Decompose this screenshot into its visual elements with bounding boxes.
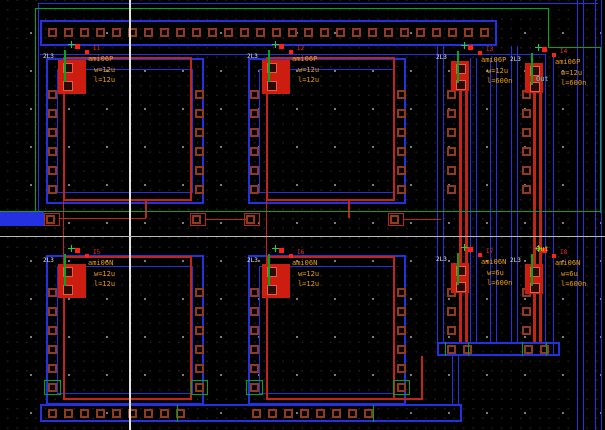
contact-square [397, 364, 406, 373]
contact-square [48, 326, 57, 335]
contact-square [447, 345, 456, 354]
device-instance[interactable]: 2L3 I1 ami06P w=12u l=12u [58, 44, 128, 96]
cell-name-label: ami06P [555, 59, 580, 66]
cell-name-label: ami06N [481, 259, 506, 266]
micro-label: 2L3 [247, 258, 258, 264]
poly-contact-marker [279, 44, 284, 49]
gate-region [525, 264, 543, 294]
contact-square [112, 409, 121, 418]
gate-region [451, 263, 469, 293]
poly-contact-marker [552, 53, 556, 57]
contact-square [195, 166, 204, 175]
width-param-label: w=12u [298, 67, 319, 74]
width-param-label: w=12u [298, 271, 319, 278]
contact-square [416, 28, 425, 37]
micro-label: 2L3 [510, 57, 521, 63]
contact-square [48, 147, 57, 156]
micro-label: 2L3 [43, 54, 54, 60]
diffusion-edge [531, 254, 533, 286]
poly-contact-marker [279, 248, 284, 253]
contact-square [447, 147, 456, 156]
layout-shape [373, 405, 374, 422]
contact-square [480, 28, 489, 37]
layout-shape [38, 3, 598, 4]
contact-square [63, 81, 73, 91]
layout-shape [522, 342, 523, 356]
contact-square [524, 345, 533, 354]
contact-square [364, 409, 373, 418]
layout-shape [60, 218, 146, 219]
contact-square [447, 307, 456, 316]
contact-square [112, 28, 121, 37]
device-instance[interactable]: 2L3 I2 ami06P w=12u l=12u [262, 44, 332, 96]
contact-square [48, 307, 57, 316]
contact-square [384, 28, 393, 37]
pin-label-out-bottom[interactable]: Out [536, 246, 549, 253]
layout-shape [443, 46, 444, 342]
layout-shape [445, 342, 446, 356]
contact-square [48, 288, 57, 297]
pin-label-out-top[interactable]: Out [536, 76, 549, 83]
contact-square [336, 28, 345, 37]
contact-square [332, 409, 341, 418]
device-instance[interactable]: 2L3 I5 ami06N w=12u l=12u [58, 248, 128, 300]
contact-square [246, 215, 255, 224]
contact-square [195, 326, 204, 335]
contact-square [432, 28, 441, 37]
gate-region [262, 264, 290, 298]
diffusion-edge [268, 50, 270, 82]
contact-square [390, 215, 399, 224]
y-axis-line [129, 0, 131, 430]
contact-square [48, 128, 57, 137]
contact-square [397, 109, 406, 118]
width-param-label: w=12u [94, 271, 115, 278]
contact-square [540, 345, 549, 354]
cell-name-label: ami06N [555, 260, 580, 267]
contact-square [397, 90, 406, 99]
contact-square [160, 409, 169, 418]
layout-shape [459, 75, 462, 342]
contact-square [267, 81, 277, 91]
cell-name-label: ami06P [481, 57, 506, 64]
contact-square [64, 28, 73, 37]
length-param-label: l=600n [487, 78, 512, 85]
instance-label: I6 [297, 250, 304, 256]
layout-shape [348, 201, 350, 218]
poly-contact-marker [289, 50, 293, 54]
micro-label: 2L3 [247, 54, 258, 60]
contact-square [195, 109, 204, 118]
contact-square [397, 345, 406, 354]
layout-shape [465, 75, 468, 342]
contact-square [447, 128, 456, 137]
contact-square [348, 409, 357, 418]
device-instance[interactable]: 2L3 I3 ami06P w=12u l=600n [451, 45, 521, 97]
contact-square [267, 285, 277, 295]
length-param-label: l=12u [298, 281, 319, 288]
device-instance[interactable]: 2L3 I4 ami06P w=12u l=600n [525, 47, 595, 99]
poly-contact-marker [468, 45, 473, 50]
contact-square [63, 285, 73, 295]
layout-shape [437, 46, 438, 342]
layout-shape [595, 0, 596, 430]
contact-square [192, 28, 201, 37]
origin-cross-icon [68, 245, 75, 252]
layout-shape [468, 342, 469, 356]
contact-square [250, 128, 259, 137]
contact-square [80, 409, 89, 418]
layout-shape [553, 54, 554, 356]
contact-square [195, 345, 204, 354]
diffusion-edge [457, 51, 459, 83]
instance-label: I3 [486, 47, 493, 53]
contact-square [250, 90, 259, 99]
contact-square [268, 409, 277, 418]
contact-square [397, 288, 406, 297]
diffusion-edge [64, 50, 66, 82]
contact-square [250, 288, 259, 297]
poly-contact-marker [542, 47, 547, 52]
contact-square [522, 185, 531, 194]
instance-label: I7 [486, 249, 493, 255]
contact-square [464, 28, 473, 37]
contact-square [195, 128, 204, 137]
origin-cross-icon [272, 245, 279, 252]
length-param-label: l=600n [561, 80, 586, 87]
contact-square [250, 166, 259, 175]
gate-region [451, 61, 469, 91]
layout-canvas[interactable]: 2L3 I1 ami06P w=12u l=12u 2L3 I2 ami06P … [0, 0, 605, 430]
width-param-label: w=12u [561, 70, 582, 77]
layout-shape [546, 342, 547, 356]
poly-contact-marker [478, 51, 482, 55]
contact-square [522, 128, 531, 137]
gate-region [262, 60, 290, 94]
contact-square [250, 109, 259, 118]
micro-label: 2L3 [510, 258, 521, 264]
contact-square [195, 288, 204, 297]
contact-square [195, 185, 204, 194]
diffusion-edge [531, 53, 533, 85]
layout-shape [421, 356, 423, 400]
contact-square [208, 28, 217, 37]
contact-square [304, 28, 313, 37]
contact-square [447, 166, 456, 175]
layout-shape [404, 219, 441, 220]
layout-shape [393, 380, 410, 395]
contact-square [48, 364, 57, 373]
layout-shape [490, 58, 491, 342]
contact-square [397, 307, 406, 316]
width-param-label: w=6u [561, 271, 578, 278]
contact-square [48, 185, 57, 194]
layout-shape [533, 75, 536, 342]
layout-shape [191, 380, 208, 395]
length-param-label: l=12u [94, 77, 115, 84]
layout-shape [470, 58, 471, 342]
cell-name-label: ami06P [292, 56, 317, 63]
contact-square [397, 166, 406, 175]
layout-shape [35, 8, 549, 9]
layout-shape [206, 219, 246, 220]
micro-label: 2L3 [436, 55, 447, 61]
origin-cross-icon [461, 244, 468, 251]
width-param-label: w=6u [487, 270, 504, 277]
contact-square [144, 409, 153, 418]
contact-square [397, 128, 406, 137]
length-param-label: l=600n [487, 280, 512, 287]
contact-square [284, 409, 293, 418]
contact-square [300, 409, 309, 418]
device-instance[interactable]: 2L3 I7 ami06N w=6u l=600n [451, 247, 521, 299]
origin-cross-icon [535, 44, 542, 51]
instance-label: I2 [297, 46, 304, 52]
length-param-label: l=12u [298, 77, 319, 84]
contact-square [447, 109, 456, 118]
diffusion-edge [64, 254, 66, 286]
poly-contact-marker [75, 44, 80, 49]
origin-cross-icon [272, 41, 279, 48]
contact-square [352, 28, 361, 37]
contact-square [316, 409, 325, 418]
poly-contact-marker [75, 248, 80, 253]
poly-contact-marker [468, 247, 473, 252]
device-instance[interactable]: 2L3 I6 ami06N w=12u l=12u [262, 248, 332, 300]
contact-square [447, 185, 456, 194]
contact-square [224, 28, 233, 37]
layout-shape [177, 405, 178, 422]
cell-name-label: ami06N [292, 260, 317, 267]
contact-square [448, 28, 457, 37]
contact-square [400, 28, 409, 37]
contact-square [48, 345, 57, 354]
micro-label: 2L3 [436, 257, 447, 263]
contact-square [195, 364, 204, 373]
poly-contact-marker [289, 254, 293, 258]
length-param-label: l=12u [94, 281, 115, 288]
layout-shape [0, 212, 44, 226]
layout-shape [539, 75, 542, 342]
poly-contact-marker [85, 254, 89, 258]
layout-shape [40, 20, 497, 46]
contact-square [48, 409, 57, 418]
micro-label: 2L3 [43, 258, 54, 264]
diffusion-edge [457, 253, 459, 285]
contact-square [195, 90, 204, 99]
origin-cross-icon [68, 41, 75, 48]
contact-square [522, 307, 531, 316]
gate-region [58, 60, 86, 94]
contact-square [96, 409, 105, 418]
contact-square [522, 166, 531, 175]
contact-square [252, 409, 261, 418]
layout-shape [44, 380, 61, 395]
contact-square [160, 28, 169, 37]
cell-name-label: ami06P [88, 56, 113, 63]
layout-shape [246, 380, 263, 395]
width-param-label: w=12u [487, 68, 508, 75]
contact-square [250, 185, 259, 194]
poly-contact-marker [85, 50, 89, 54]
layout-shape [145, 201, 147, 218]
instance-label: I8 [560, 250, 567, 256]
contact-square [522, 147, 531, 156]
layout-shape [601, 0, 602, 430]
contact-square [397, 326, 406, 335]
origin-cross-icon [461, 42, 468, 49]
contact-square [522, 109, 531, 118]
contact-square [46, 215, 55, 224]
contact-square [195, 307, 204, 316]
contact-square [195, 147, 204, 156]
contact-square [368, 28, 377, 37]
layout-shape [545, 54, 546, 356]
instance-label: I5 [93, 250, 100, 256]
device-instance[interactable]: 2L3 I8 ami06N w=6u l=600n [525, 248, 595, 300]
layout-shape [38, 3, 39, 212]
contact-square [256, 28, 265, 37]
contact-square [176, 28, 185, 37]
poly-contact-marker [478, 253, 482, 257]
contact-square [240, 28, 249, 37]
layout-shape [395, 398, 423, 400]
layout-shape [458, 356, 459, 404]
layout-shape [452, 356, 453, 404]
x-axis-line [0, 236, 605, 237]
layout-shape [35, 8, 36, 212]
contact-square [64, 409, 73, 418]
instance-label: I1 [93, 46, 100, 52]
diffusion-edge [268, 254, 270, 286]
contact-square [447, 326, 456, 335]
layout-shape [476, 58, 477, 342]
contact-square [397, 185, 406, 194]
contact-square [48, 166, 57, 175]
contact-square [250, 345, 259, 354]
contact-square [272, 28, 281, 37]
width-param-label: w=12u [94, 67, 115, 74]
layout-shape [0, 211, 601, 212]
contact-square [250, 364, 259, 373]
instance-label: I4 [560, 49, 567, 55]
contact-square [397, 147, 406, 156]
poly-contact-marker [552, 254, 556, 258]
contact-square [320, 28, 329, 37]
contact-square [250, 147, 259, 156]
contact-square [48, 109, 57, 118]
contact-square [192, 215, 201, 224]
contact-square [96, 28, 105, 37]
contact-square [288, 28, 297, 37]
contact-square [522, 326, 531, 335]
layout-shape [548, 8, 549, 48]
contact-square [48, 28, 57, 37]
contact-square [144, 28, 153, 37]
contact-square [80, 28, 89, 37]
gate-region [58, 264, 86, 298]
length-param-label: l=600n [561, 281, 586, 288]
layout-shape [496, 58, 497, 342]
contact-square [250, 307, 259, 316]
contact-square [250, 326, 259, 335]
layout-shape [600, 47, 601, 213]
cell-name-label: ami06N [88, 260, 113, 267]
contact-square [48, 90, 57, 99]
